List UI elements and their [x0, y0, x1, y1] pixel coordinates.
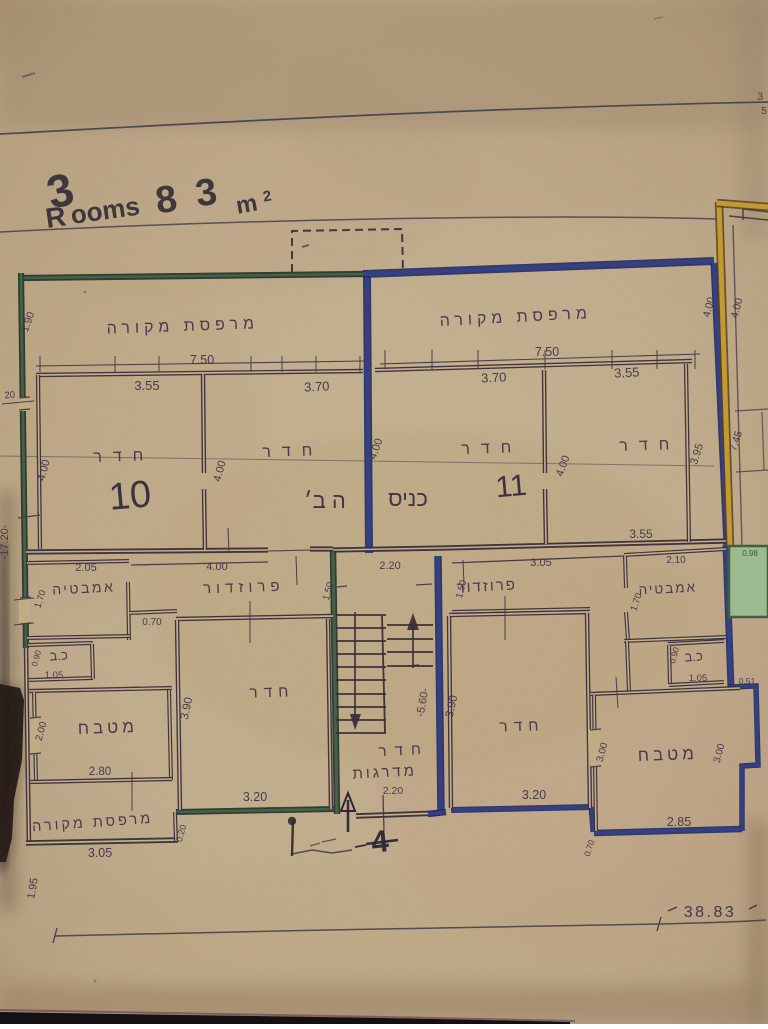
- svg-text:חדר: חדר: [499, 717, 545, 736]
- svg-text:3.70: 3.70: [304, 378, 330, 394]
- svg-text:10: 10: [107, 473, 153, 519]
- svg-text:2.05: 2.05: [75, 562, 96, 574]
- svg-text:4.00: 4.00: [206, 561, 227, 573]
- svg-text:חדר: חדר: [378, 741, 429, 761]
- svg-text:אמבטיה: אמבטיה: [638, 579, 697, 597]
- svg-text:11: 11: [494, 469, 528, 505]
- svg-text:7.50: 7.50: [535, 345, 559, 359]
- svg-text:2.20: 2.20: [379, 560, 400, 572]
- svg-text:2.80: 2.80: [89, 766, 111, 778]
- svg-text:חדר: חדר: [619, 436, 681, 455]
- svg-text:חדר: חדר: [93, 447, 155, 466]
- svg-text:פרוזדור: פרוזדור: [203, 578, 285, 598]
- svg-text:2.85: 2.85: [667, 815, 691, 829]
- svg-text:0.70: 0.70: [142, 617, 162, 628]
- svg-text:0.51: 0.51: [739, 676, 756, 686]
- svg-text:חדר: חדר: [461, 439, 523, 458]
- svg-text:20: 20: [4, 390, 15, 402]
- svg-text:מטבח: מטבח: [77, 717, 138, 738]
- svg-text:אמבטיה: אמבטיה: [52, 578, 116, 597]
- svg-text:כ.ב: כ.ב: [684, 648, 703, 664]
- svg-text:R: R: [44, 200, 68, 234]
- svg-text:1.05: 1.05: [689, 673, 708, 684]
- svg-text:3.20: 3.20: [522, 788, 546, 802]
- svg-text:3.05: 3.05: [88, 846, 112, 860]
- svg-text:כ.ב: כ.ב: [49, 647, 68, 663]
- svg-text:3.55: 3.55: [629, 527, 653, 541]
- svg-text:3.55: 3.55: [134, 378, 159, 393]
- svg-text:0.98: 0.98: [742, 549, 758, 558]
- svg-text:חדר: חדר: [262, 442, 324, 461]
- svg-text:38.83: 38.83: [684, 904, 737, 921]
- svg-text:1.05: 1.05: [45, 670, 64, 681]
- svg-text:2.20: 2.20: [383, 785, 404, 797]
- svg-text:חדר: חדר: [249, 683, 295, 702]
- svg-text:מדרגות: מדרגות: [352, 762, 417, 782]
- svg-text:3.55: 3.55: [614, 364, 640, 380]
- svg-text:2.10: 2.10: [666, 555, 686, 566]
- svg-text:7.50: 7.50: [190, 353, 214, 367]
- svg-text:5: 5: [761, 106, 767, 117]
- svg-text:3: 3: [757, 91, 763, 103]
- svg-text:כניס: כניס: [388, 486, 428, 511]
- svg-text:3.05: 3.05: [530, 557, 551, 569]
- svg-text:מטבח: מטבח: [637, 744, 698, 765]
- svg-text:3.70: 3.70: [481, 369, 507, 385]
- svg-text:3.20: 3.20: [243, 790, 267, 804]
- svg-text:-17.20-: -17.20-: [0, 524, 11, 559]
- svg-text:ה ב׳: ה ב׳: [304, 488, 346, 513]
